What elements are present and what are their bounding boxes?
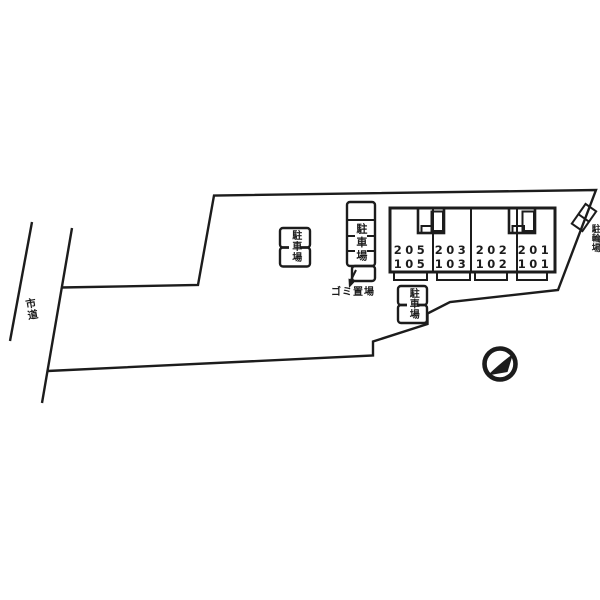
- parking-left-label: 駐車場: [289, 230, 300, 263]
- unit-205-label: 205: [388, 244, 434, 256]
- unit-101-label: 101: [512, 258, 558, 270]
- site-plan-canvas: 市道 駐車場 駐車場 駐車場 ゴミ置場 駐輪場 205 105 203 103 …: [0, 0, 600, 600]
- bicycle-label: 駐輪場: [589, 224, 599, 253]
- site-plan-drawing: [0, 0, 600, 600]
- stair-notch-2: [509, 208, 535, 233]
- property-boundary: [48, 190, 597, 371]
- parking-strip-label: 駐車場: [355, 223, 367, 264]
- garbage-label: ゴミ置場: [331, 288, 375, 299]
- unit-105-label: 105: [388, 258, 434, 270]
- unit-103-label: 103: [429, 258, 475, 270]
- unit-102-label: 102: [470, 258, 516, 270]
- parking-south-label: 駐車場: [407, 288, 418, 320]
- stair-notch-1: [418, 208, 444, 233]
- unit-203-label: 203: [429, 244, 475, 256]
- unit-201-label: 201: [512, 244, 558, 256]
- road-lines: [10, 222, 72, 403]
- unit-202-label: 202: [470, 244, 516, 256]
- north-arrow-icon: [485, 349, 516, 380]
